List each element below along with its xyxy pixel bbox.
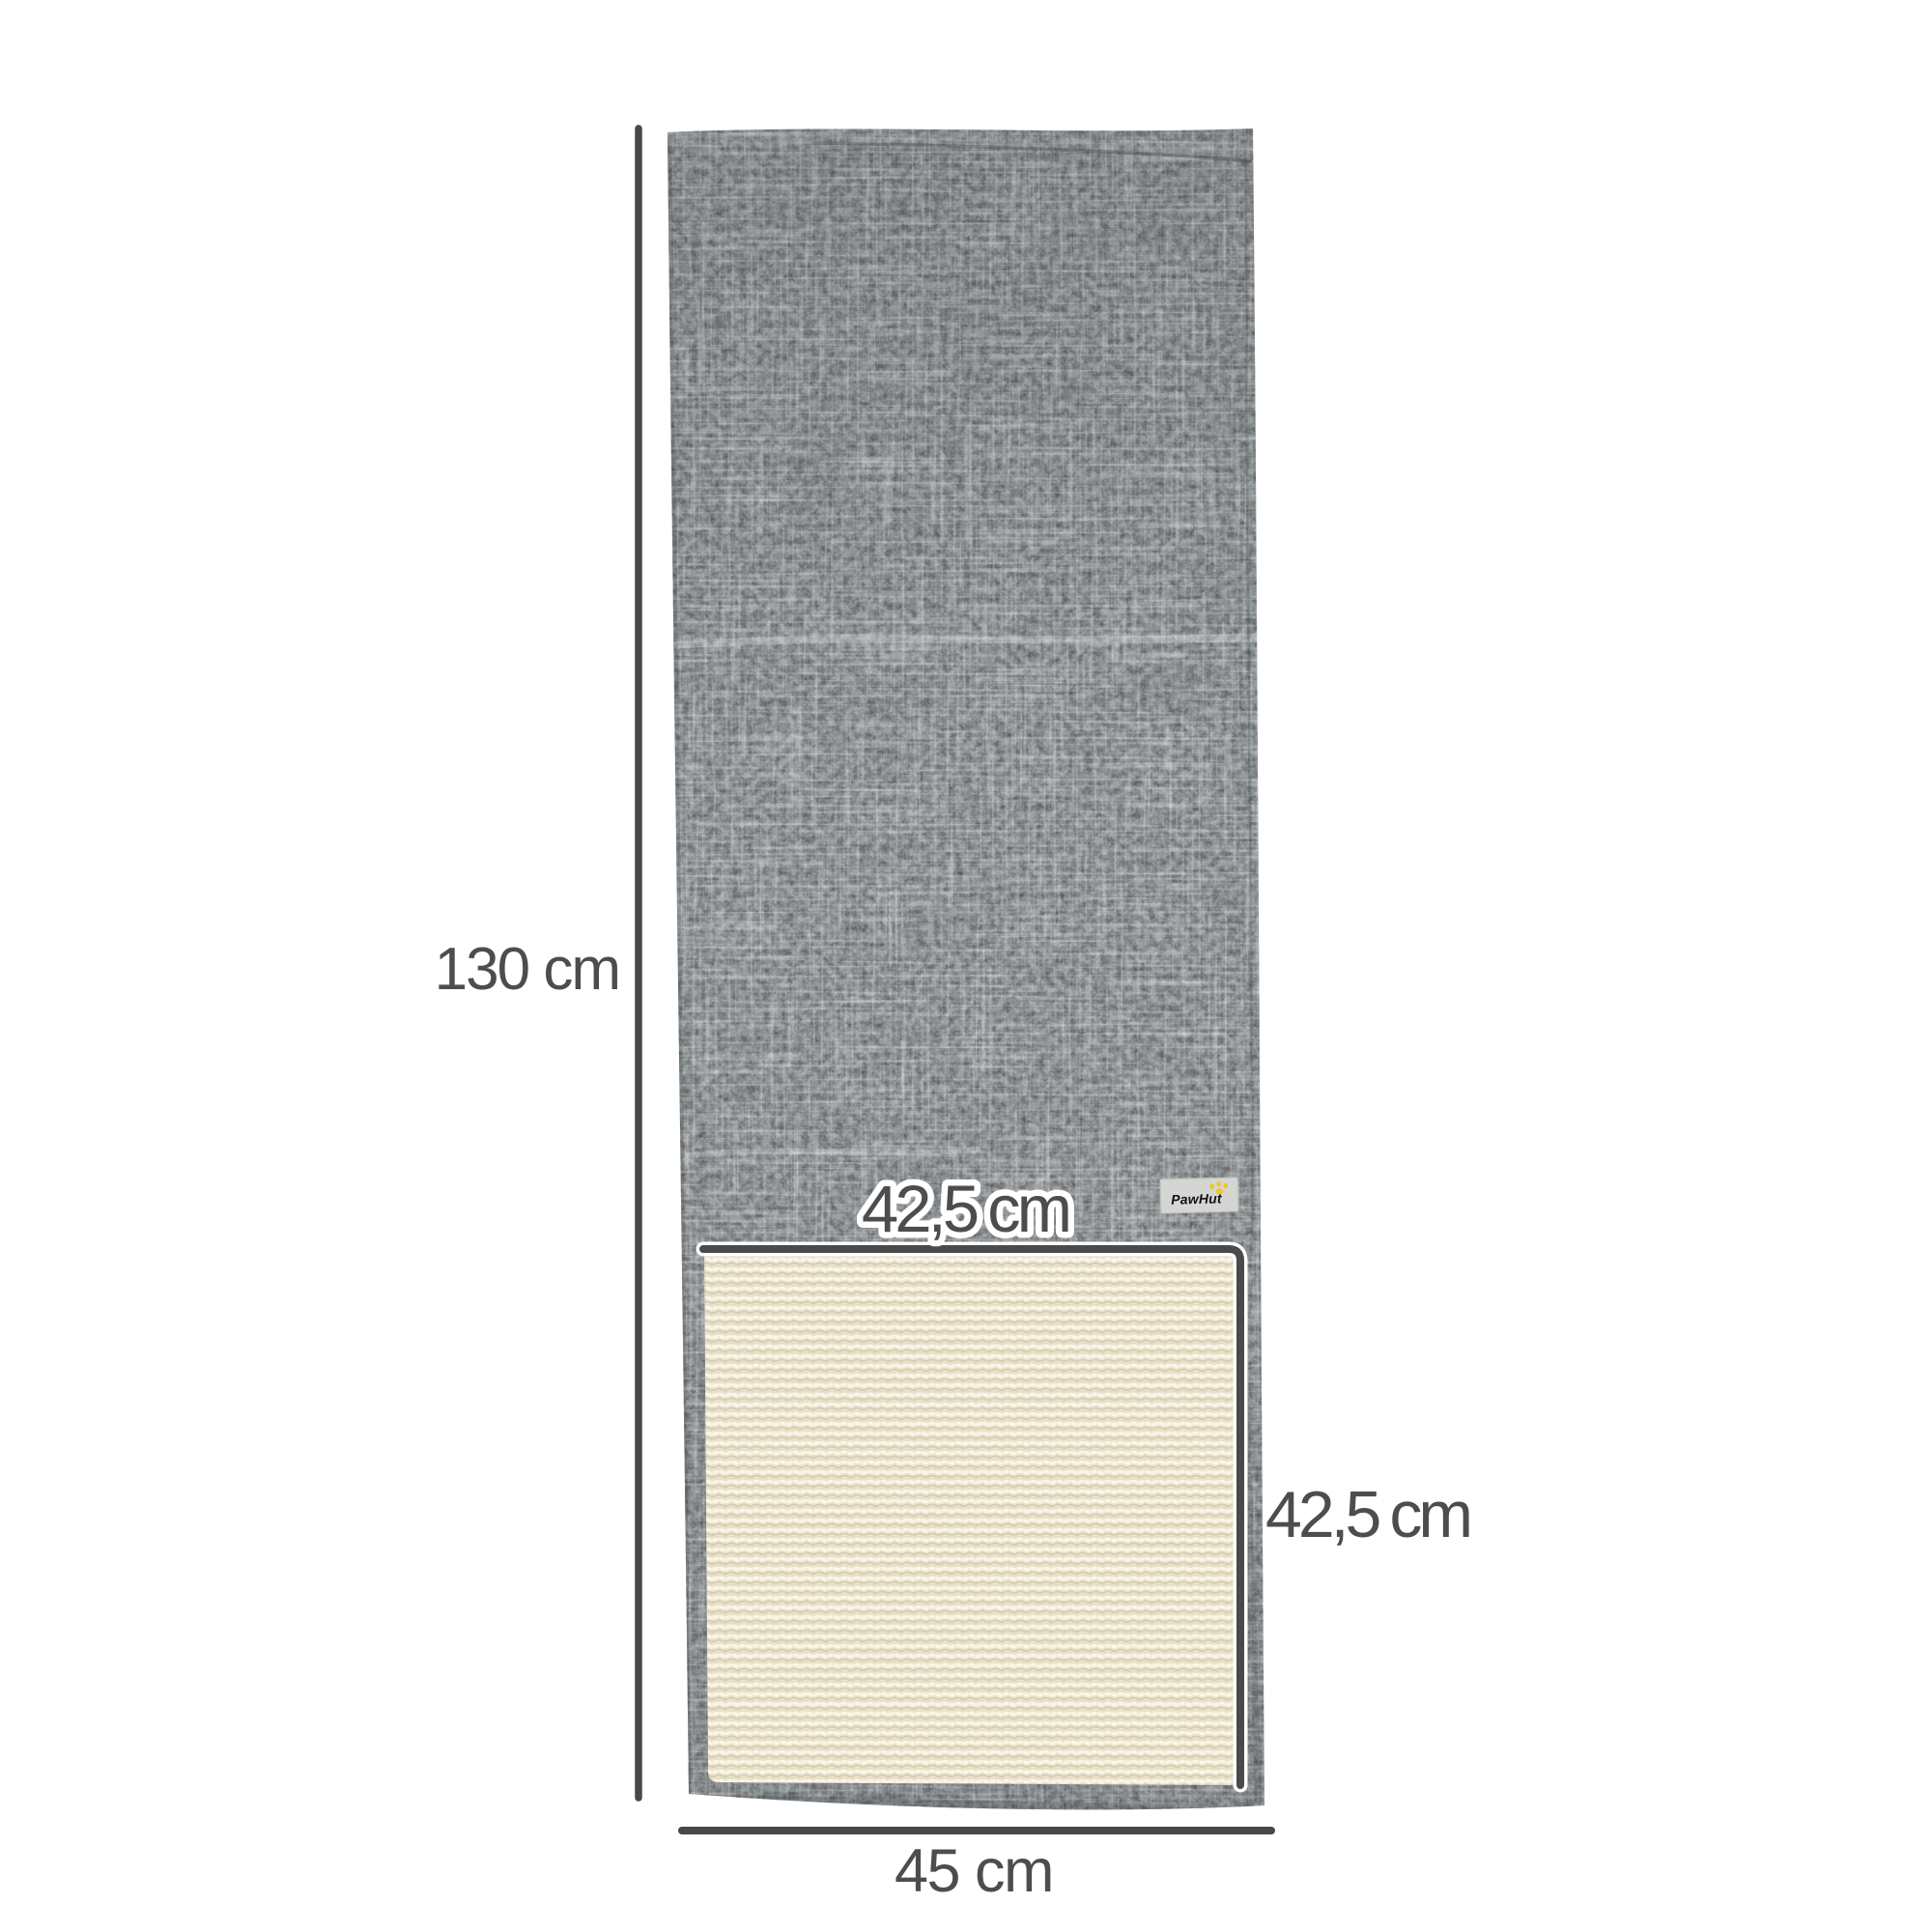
svg-text:130 cm: 130 cm: [435, 936, 619, 1003]
svg-text:42,5cm: 42,5cm: [862, 1172, 1068, 1246]
svg-text:42,5cm: 42,5cm: [1265, 1478, 1469, 1551]
svg-text:45 cm: 45 cm: [895, 1837, 1053, 1905]
svg-text:PawHut: PawHut: [1171, 1190, 1223, 1207]
